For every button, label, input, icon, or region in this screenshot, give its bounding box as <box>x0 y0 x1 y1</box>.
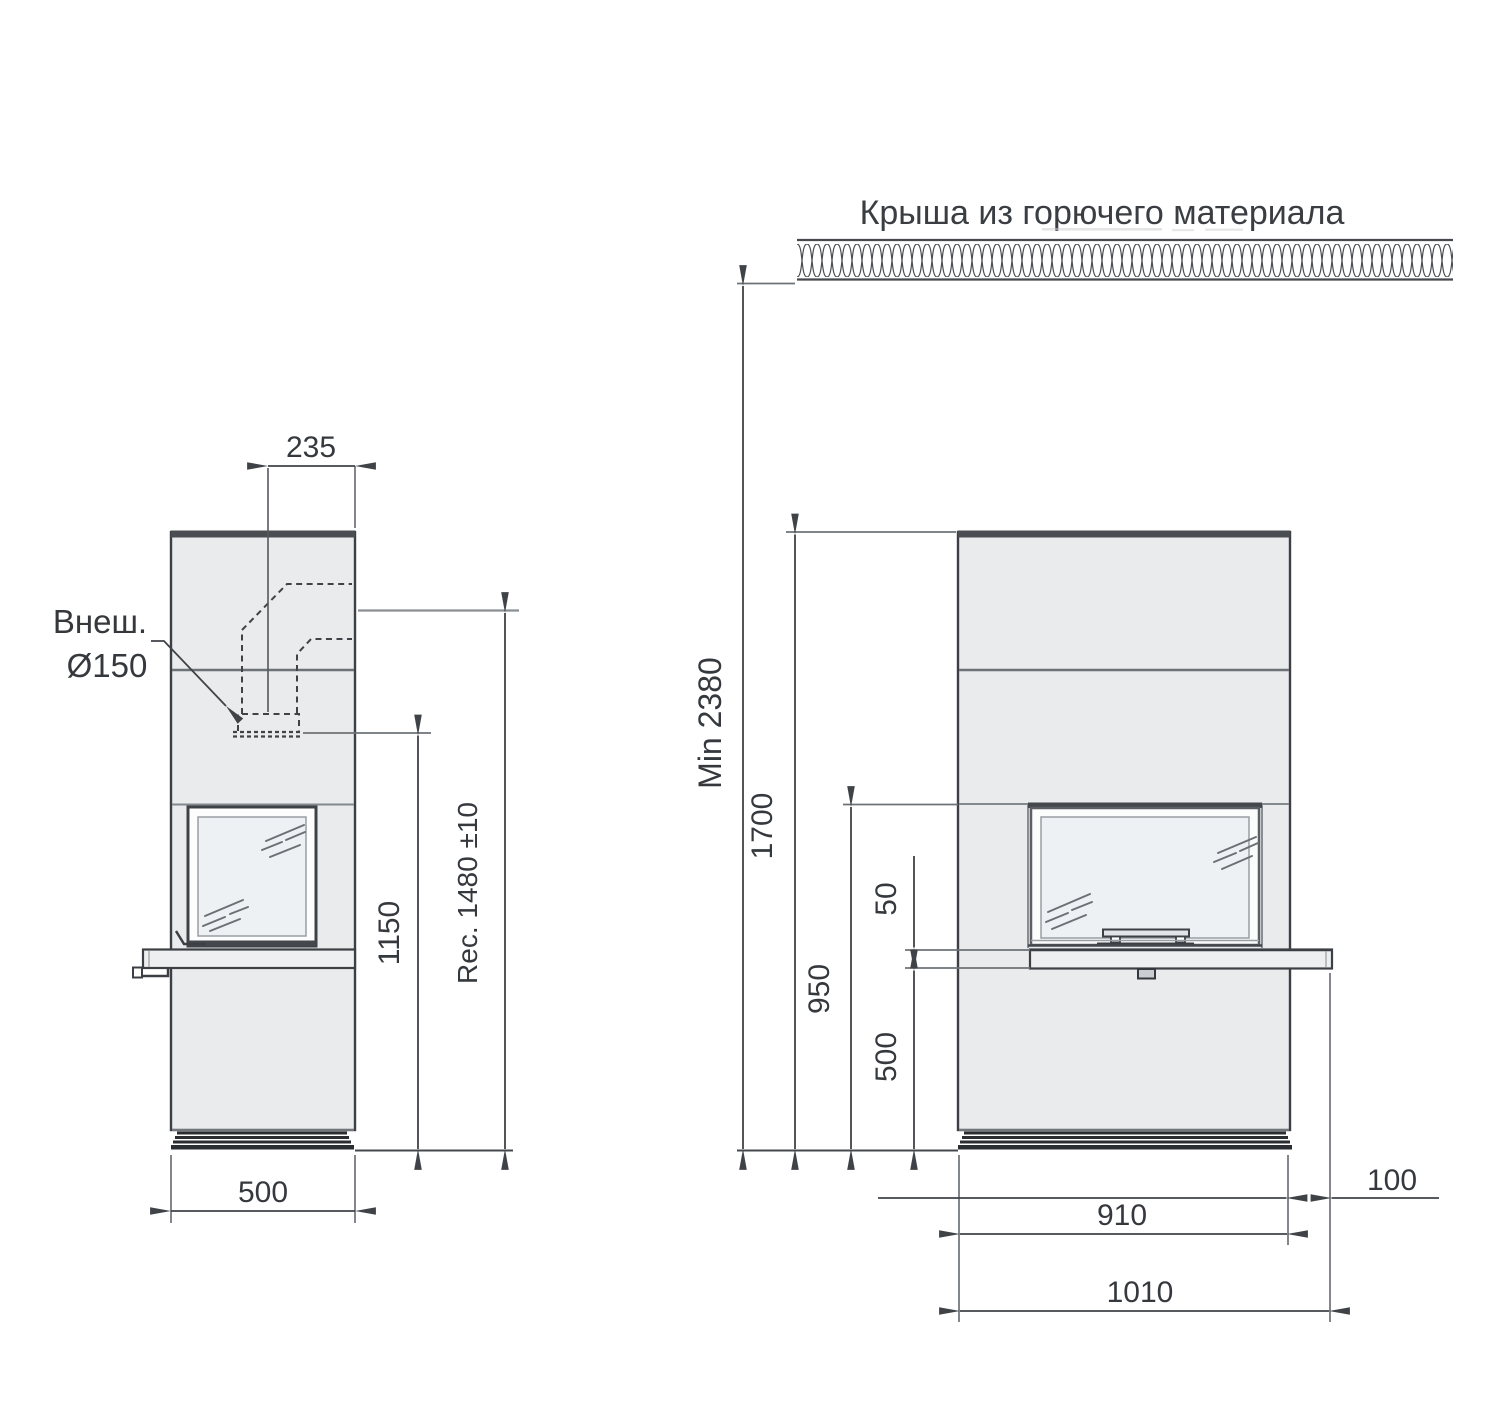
drawing-title: Крыша из горючего материала <box>860 194 1345 232</box>
technical-drawing-canvas: Внеш. Ø150 235 1150 Rec. 1480 ±10 500 <box>0 0 1500 1427</box>
firebox-front <box>1028 803 1262 949</box>
bench-slab-front <box>1030 950 1332 969</box>
handle-foot-left <box>1111 937 1120 943</box>
dim-1150-label: 1150 <box>373 901 406 966</box>
flue-note-line1: Внеш. <box>53 603 147 640</box>
dim-500-label: 500 <box>238 1176 288 1209</box>
firebox-door-side <box>176 807 316 946</box>
dim-body-width: 910 <box>960 1199 1287 1234</box>
dim-ceiling-min: Min 2380 <box>692 284 795 1150</box>
top-cap-side <box>171 531 355 538</box>
bench-slab-side <box>143 950 355 969</box>
fireplace-installation-drawing: Внеш. Ø150 235 1150 Rec. 1480 ±10 500 <box>0 0 1500 1427</box>
door-glass-side <box>198 817 306 936</box>
dim-opening-height: 950 <box>803 805 958 1150</box>
dim-flue-offset: 235 <box>268 431 355 528</box>
ceiling-insulation-hatch <box>797 244 1453 277</box>
door-handle-bar <box>1103 930 1189 937</box>
bench-handle-side <box>142 969 168 976</box>
dim-1480-label: Rec. 1480 ±10 <box>452 802 483 984</box>
dim-depth: 500 <box>171 1155 355 1223</box>
dim-2380-label: Min 2380 <box>692 657 728 789</box>
dim-950-label: 950 <box>803 964 836 1014</box>
dim-top-outlet-height: Rec. 1480 ±10 <box>358 611 519 1150</box>
front-view: Крыша из горючего материала <box>692 194 1453 1322</box>
combustible-ceiling <box>797 240 1453 280</box>
bench-handle-knob <box>133 968 142 978</box>
dim-1700-label: 1700 <box>746 793 779 860</box>
dim-50-label: 50 <box>870 882 903 915</box>
dim-1010-label: 1010 <box>1107 1276 1174 1309</box>
dim-bench-overhang: 100 <box>878 1164 1439 1198</box>
top-cap-front <box>958 531 1290 538</box>
dim-100-label: 100 <box>1367 1164 1417 1197</box>
dim-bench-bottom-height: 500 <box>870 971 914 1150</box>
side-view: Внеш. Ø150 235 1150 Rec. 1480 ±10 500 <box>53 431 519 1223</box>
dim-overall-width: 1010 <box>960 1276 1329 1311</box>
plinth-front <box>958 1132 1292 1150</box>
bench-handle-front <box>1138 969 1155 979</box>
door-bottom-bar-side <box>188 941 316 947</box>
dim-910-label: 910 <box>1097 1199 1147 1232</box>
plinth-side <box>171 1132 354 1150</box>
dim-500f-label: 500 <box>870 1032 903 1082</box>
handle-foot-right <box>1176 937 1185 943</box>
flue-note-line2: Ø150 <box>67 647 148 684</box>
dim-235-label: 235 <box>286 431 336 464</box>
